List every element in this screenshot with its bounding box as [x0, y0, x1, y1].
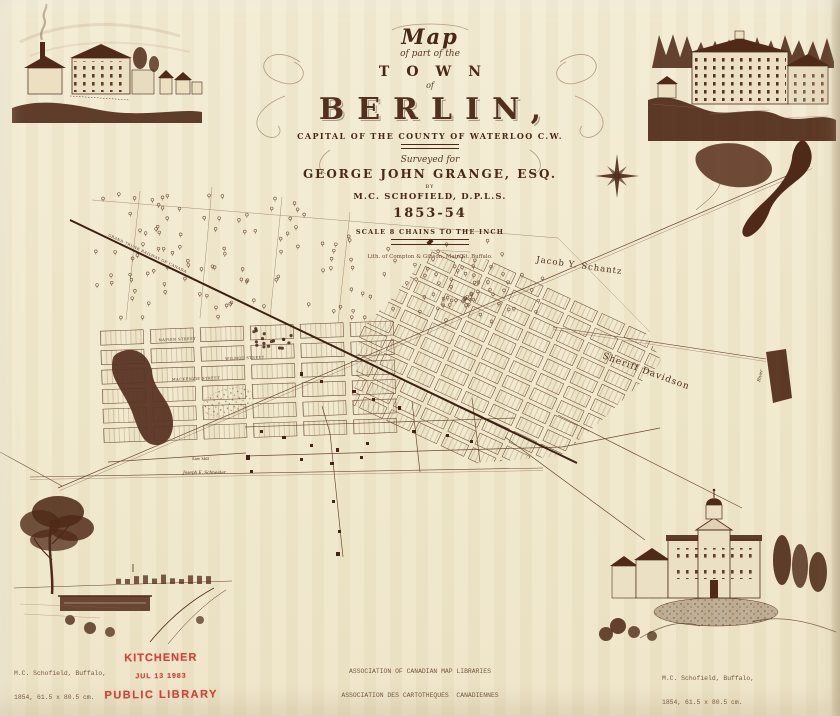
south-streets — [108, 398, 742, 557]
stamp-library: PUBLIC LIBRARY — [96, 688, 226, 701]
title-map-word: Map — [258, 26, 602, 48]
title-scale-line: SCALE 8 CHAINS TO THE INCH — [258, 228, 602, 236]
scale-bar — [391, 239, 469, 245]
stamp-city: KITCHENER — [96, 651, 226, 664]
mill-pond — [695, 143, 772, 187]
title-berlin: BERLIN, — [258, 93, 602, 126]
title-subtitle: of part of the — [258, 49, 602, 60]
river-band — [766, 349, 792, 403]
vignette-top-left — [12, 4, 202, 123]
street-label: WILMOT STREET — [225, 355, 265, 360]
title-cartouche: Map of part of the TOWN of BERLIN, CAPIT… — [258, 26, 602, 261]
title-by: BY — [258, 184, 602, 190]
street-label: MACKENZIE STREET — [172, 376, 221, 382]
title-surveyed-for: Surveyed for — [258, 155, 602, 165]
schneider-label: Joseph E. Schneider — [182, 470, 227, 475]
imprint-center: ASSOCIATION OF CANADIAN MAP LIBRARIES AS… — [300, 651, 540, 716]
vignette-top-right — [648, 31, 836, 141]
library-stamp: KITCHENER JUL 13 1983 PUBLIC LIBRARY — [96, 651, 227, 701]
title-town: TOWN — [258, 64, 602, 80]
title-surveyor: M.C. SCHOFIELD, D.P.L.S. — [258, 192, 602, 202]
title-client: GEORGE JOHN GRANGE, ESQ. — [258, 168, 602, 181]
davidson-label: Sheriff Davidson — [601, 351, 691, 392]
stamp-date: JUL 13 1983 — [96, 671, 226, 681]
map-sheet: NAPIER STREET WILMOT STREET MACKENZIE ST… — [0, 0, 840, 716]
title-years: 1853-54 — [258, 207, 602, 221]
title-ornament-rule — [401, 144, 459, 149]
vignette-bottom-right — [599, 489, 836, 641]
title-lith-line: Lith. of Compton & Gibson, Main St. Buff… — [258, 254, 602, 261]
title-of: of — [258, 81, 602, 90]
imprint-french: M.C. Schofield, Buffalo, 1854, 61.5 x 80… — [662, 658, 773, 716]
railway-label: GRAND TRUNK RAILWAY OF CANADA — [108, 233, 188, 274]
vignette-bottom-left — [14, 496, 232, 644]
saw-mill-label: Saw Mill — [192, 456, 210, 461]
title-capital-line: CAPITAL OF THE COUNTY OF WATERLOO C.W. — [258, 131, 602, 141]
river-label: River — [756, 368, 765, 383]
town-silhouette — [116, 575, 211, 584]
